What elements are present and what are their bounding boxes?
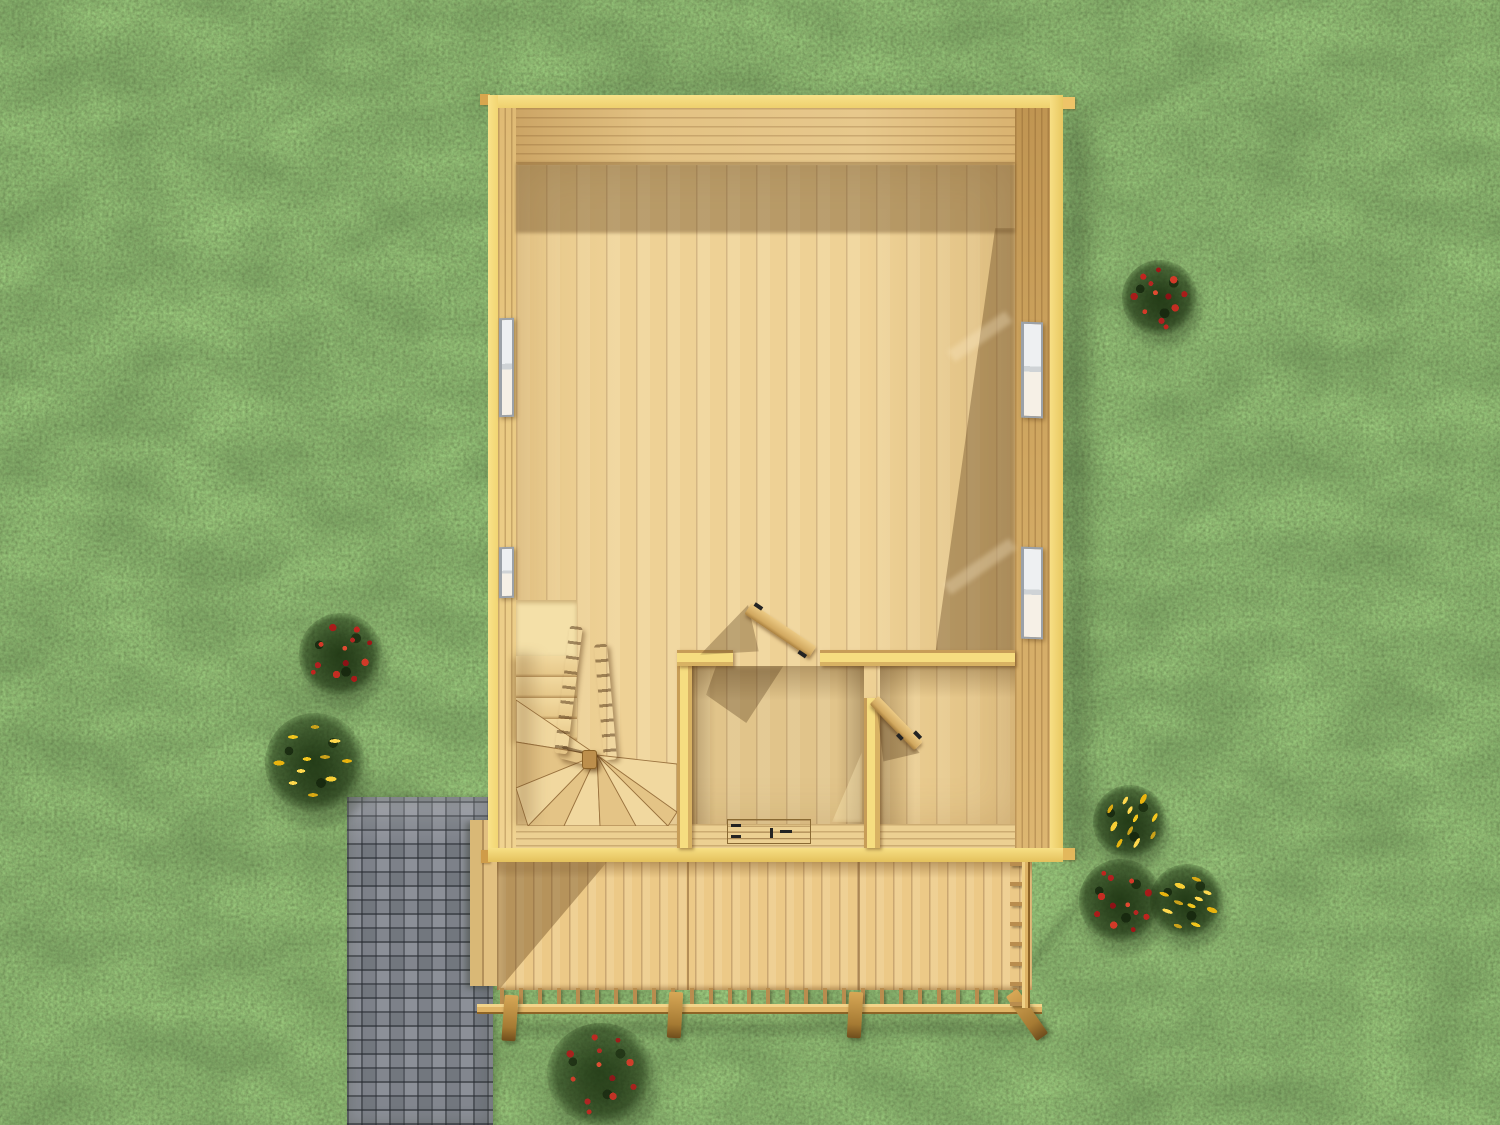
render-stage bbox=[0, 0, 1500, 1125]
house-ground-shadow-right bbox=[1063, 115, 1089, 860]
bush-yellow-right-upper bbox=[1093, 785, 1167, 859]
wall-left bbox=[488, 95, 498, 862]
stair-left-shadow bbox=[516, 652, 544, 824]
stair-newel-post bbox=[582, 750, 597, 769]
deck-joint bbox=[687, 862, 689, 990]
deck-railing-rail-right bbox=[1022, 856, 1030, 1008]
wall-top bbox=[488, 95, 1063, 108]
partition-wall-front-right bbox=[820, 650, 1015, 666]
house-ground-shadow-top bbox=[480, 86, 1070, 94]
wall-top-inner-face bbox=[498, 108, 1050, 165]
bush-yellow-left bbox=[265, 713, 365, 813]
partition-wall-middle-right bbox=[864, 698, 880, 848]
wall-right-inner-face bbox=[1015, 108, 1050, 848]
deck-joint bbox=[858, 862, 860, 990]
deck-railing-rail-bottom bbox=[477, 1004, 1042, 1014]
floor-shadow-top bbox=[516, 163, 1015, 233]
window-left-upper bbox=[499, 318, 514, 418]
floor-hatch bbox=[727, 819, 811, 844]
bush-yellow-right-lower bbox=[1150, 864, 1224, 938]
bush-red-top-right bbox=[1122, 260, 1198, 336]
wall-left-inner-face bbox=[498, 108, 516, 848]
bush-red-left bbox=[299, 613, 383, 697]
window-right-lower bbox=[1021, 547, 1043, 640]
window-left-lower bbox=[499, 547, 514, 599]
log-corner-tab bbox=[1061, 848, 1075, 860]
wall-right bbox=[1050, 95, 1063, 862]
railing-post bbox=[667, 992, 683, 1039]
partition-wall-stairs bbox=[677, 650, 692, 848]
window-right-upper bbox=[1021, 322, 1043, 419]
bush-red-bottom bbox=[547, 1023, 655, 1125]
log-corner-tab bbox=[1061, 97, 1075, 109]
wall-bottom bbox=[488, 848, 1063, 862]
railing-post bbox=[847, 992, 863, 1039]
